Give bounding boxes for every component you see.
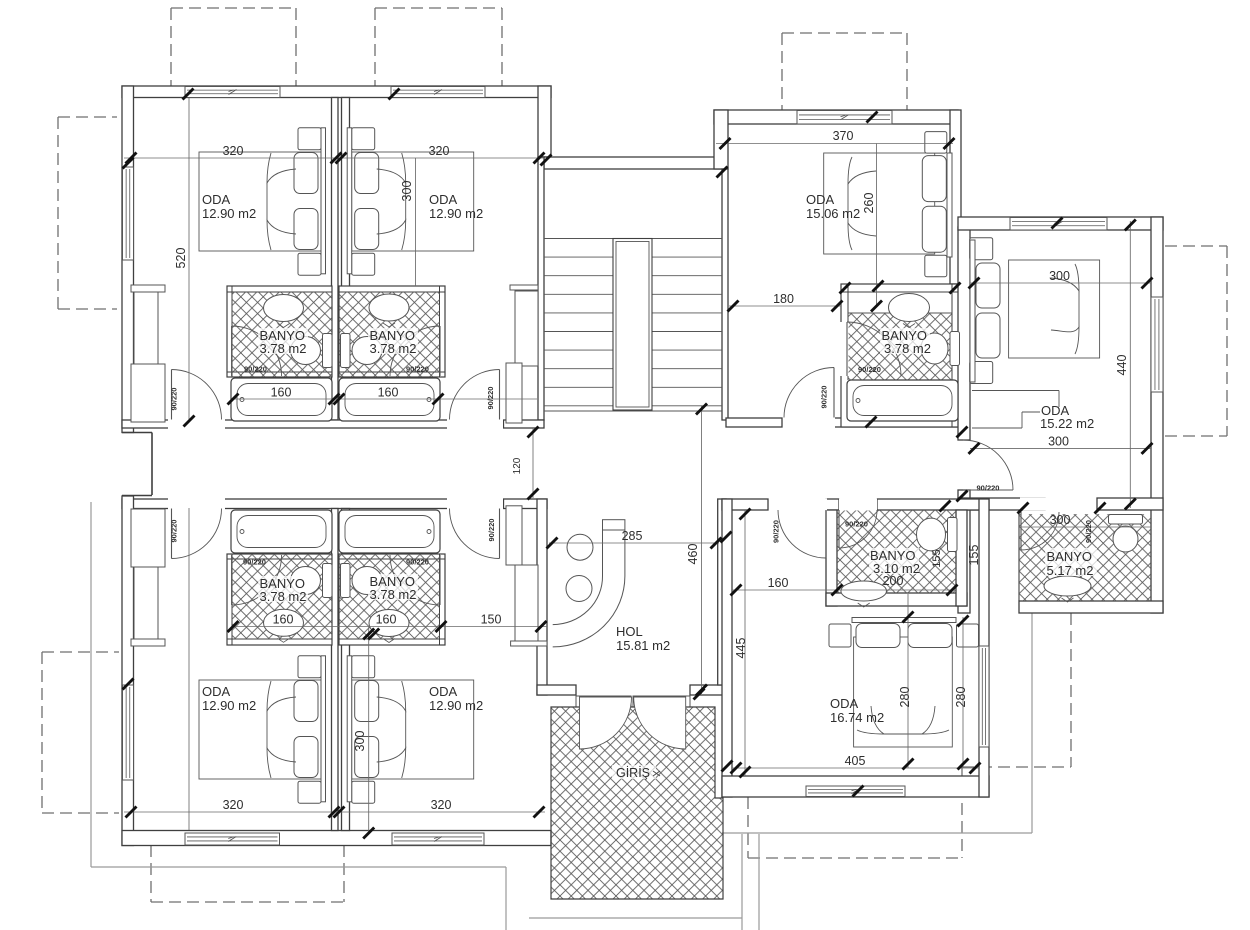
svg-text:12.90 m2: 12.90 m2 xyxy=(429,698,483,713)
svg-text:280: 280 xyxy=(954,687,968,708)
svg-text:160: 160 xyxy=(376,613,397,627)
svg-text:200: 200 xyxy=(883,574,904,588)
svg-text:320: 320 xyxy=(223,798,244,812)
svg-text:BANYO: BANYO xyxy=(1047,549,1093,564)
svg-text:160: 160 xyxy=(273,613,294,627)
svg-text:90/220: 90/220 xyxy=(170,520,179,543)
svg-text:90/220: 90/220 xyxy=(244,365,267,374)
svg-text:16.74 m2: 16.74 m2 xyxy=(830,710,884,725)
svg-text:ODA: ODA xyxy=(830,696,859,711)
svg-text:150: 150 xyxy=(481,613,502,627)
svg-text:15.06 m2: 15.06 m2 xyxy=(806,206,860,221)
svg-text:320: 320 xyxy=(431,798,452,812)
svg-text:90/220: 90/220 xyxy=(406,365,429,374)
svg-text:ODA: ODA xyxy=(806,192,835,207)
svg-text:90/220: 90/220 xyxy=(1084,520,1093,543)
svg-text:90/220: 90/220 xyxy=(170,388,179,411)
svg-text:155: 155 xyxy=(967,545,981,566)
svg-text:ODA: ODA xyxy=(202,684,231,699)
svg-text:460: 460 xyxy=(686,544,700,565)
svg-text:300: 300 xyxy=(1050,513,1071,527)
svg-text:12.90 m2: 12.90 m2 xyxy=(202,206,256,221)
svg-text:90/220: 90/220 xyxy=(486,387,495,410)
svg-text:370: 370 xyxy=(833,129,854,143)
svg-text:300: 300 xyxy=(400,181,414,202)
svg-text:280: 280 xyxy=(898,687,912,708)
svg-text:160: 160 xyxy=(271,386,292,400)
svg-text:445: 445 xyxy=(734,638,748,659)
svg-text:90/220: 90/220 xyxy=(243,558,266,567)
svg-text:ODA: ODA xyxy=(429,192,458,207)
svg-text:90/220: 90/220 xyxy=(845,520,868,529)
svg-text:90/220: 90/220 xyxy=(858,365,881,374)
svg-text:160: 160 xyxy=(768,576,789,590)
svg-text:3.78 m2: 3.78 m2 xyxy=(260,589,307,604)
svg-text:GİRİŞ: GİRİŞ xyxy=(616,766,650,780)
svg-text:300: 300 xyxy=(1049,269,1070,283)
svg-text:90/220: 90/220 xyxy=(820,386,829,409)
svg-text:3.78 m2: 3.78 m2 xyxy=(370,341,417,356)
svg-text:285: 285 xyxy=(622,529,643,543)
svg-text:405: 405 xyxy=(845,754,866,768)
svg-text:300: 300 xyxy=(353,731,367,752)
svg-text:300: 300 xyxy=(1048,435,1069,449)
svg-text:90/220: 90/220 xyxy=(772,520,781,543)
svg-text:180: 180 xyxy=(773,292,794,306)
svg-text:160: 160 xyxy=(378,386,399,400)
svg-text:90/220: 90/220 xyxy=(977,484,1000,493)
svg-text:3.78 m2: 3.78 m2 xyxy=(260,341,307,356)
svg-text:ODA: ODA xyxy=(202,192,231,207)
svg-text:15.81 m2: 15.81 m2 xyxy=(616,638,670,653)
svg-text:3.78 m2: 3.78 m2 xyxy=(884,341,931,356)
svg-text:12.90 m2: 12.90 m2 xyxy=(429,206,483,221)
svg-text:HOL: HOL xyxy=(616,624,643,639)
svg-text:320: 320 xyxy=(429,144,450,158)
svg-text:440: 440 xyxy=(1115,355,1129,376)
svg-text:520: 520 xyxy=(174,248,188,269)
svg-text:15.22 m2: 15.22 m2 xyxy=(1040,416,1094,431)
svg-text:90/220: 90/220 xyxy=(487,519,496,542)
svg-text:120: 120 xyxy=(512,457,523,474)
svg-text:260: 260 xyxy=(862,193,876,214)
svg-text:320: 320 xyxy=(223,144,244,158)
svg-text:90/220: 90/220 xyxy=(406,558,429,567)
svg-text:3.10 m2: 3.10 m2 xyxy=(873,561,920,576)
svg-text:ODA: ODA xyxy=(429,684,458,699)
svg-text:12.90 m2: 12.90 m2 xyxy=(202,698,256,713)
svg-text:155: 155 xyxy=(931,549,943,567)
svg-text:5.17 m2: 5.17 m2 xyxy=(1047,563,1094,578)
svg-text:3.78 m2: 3.78 m2 xyxy=(370,587,417,602)
